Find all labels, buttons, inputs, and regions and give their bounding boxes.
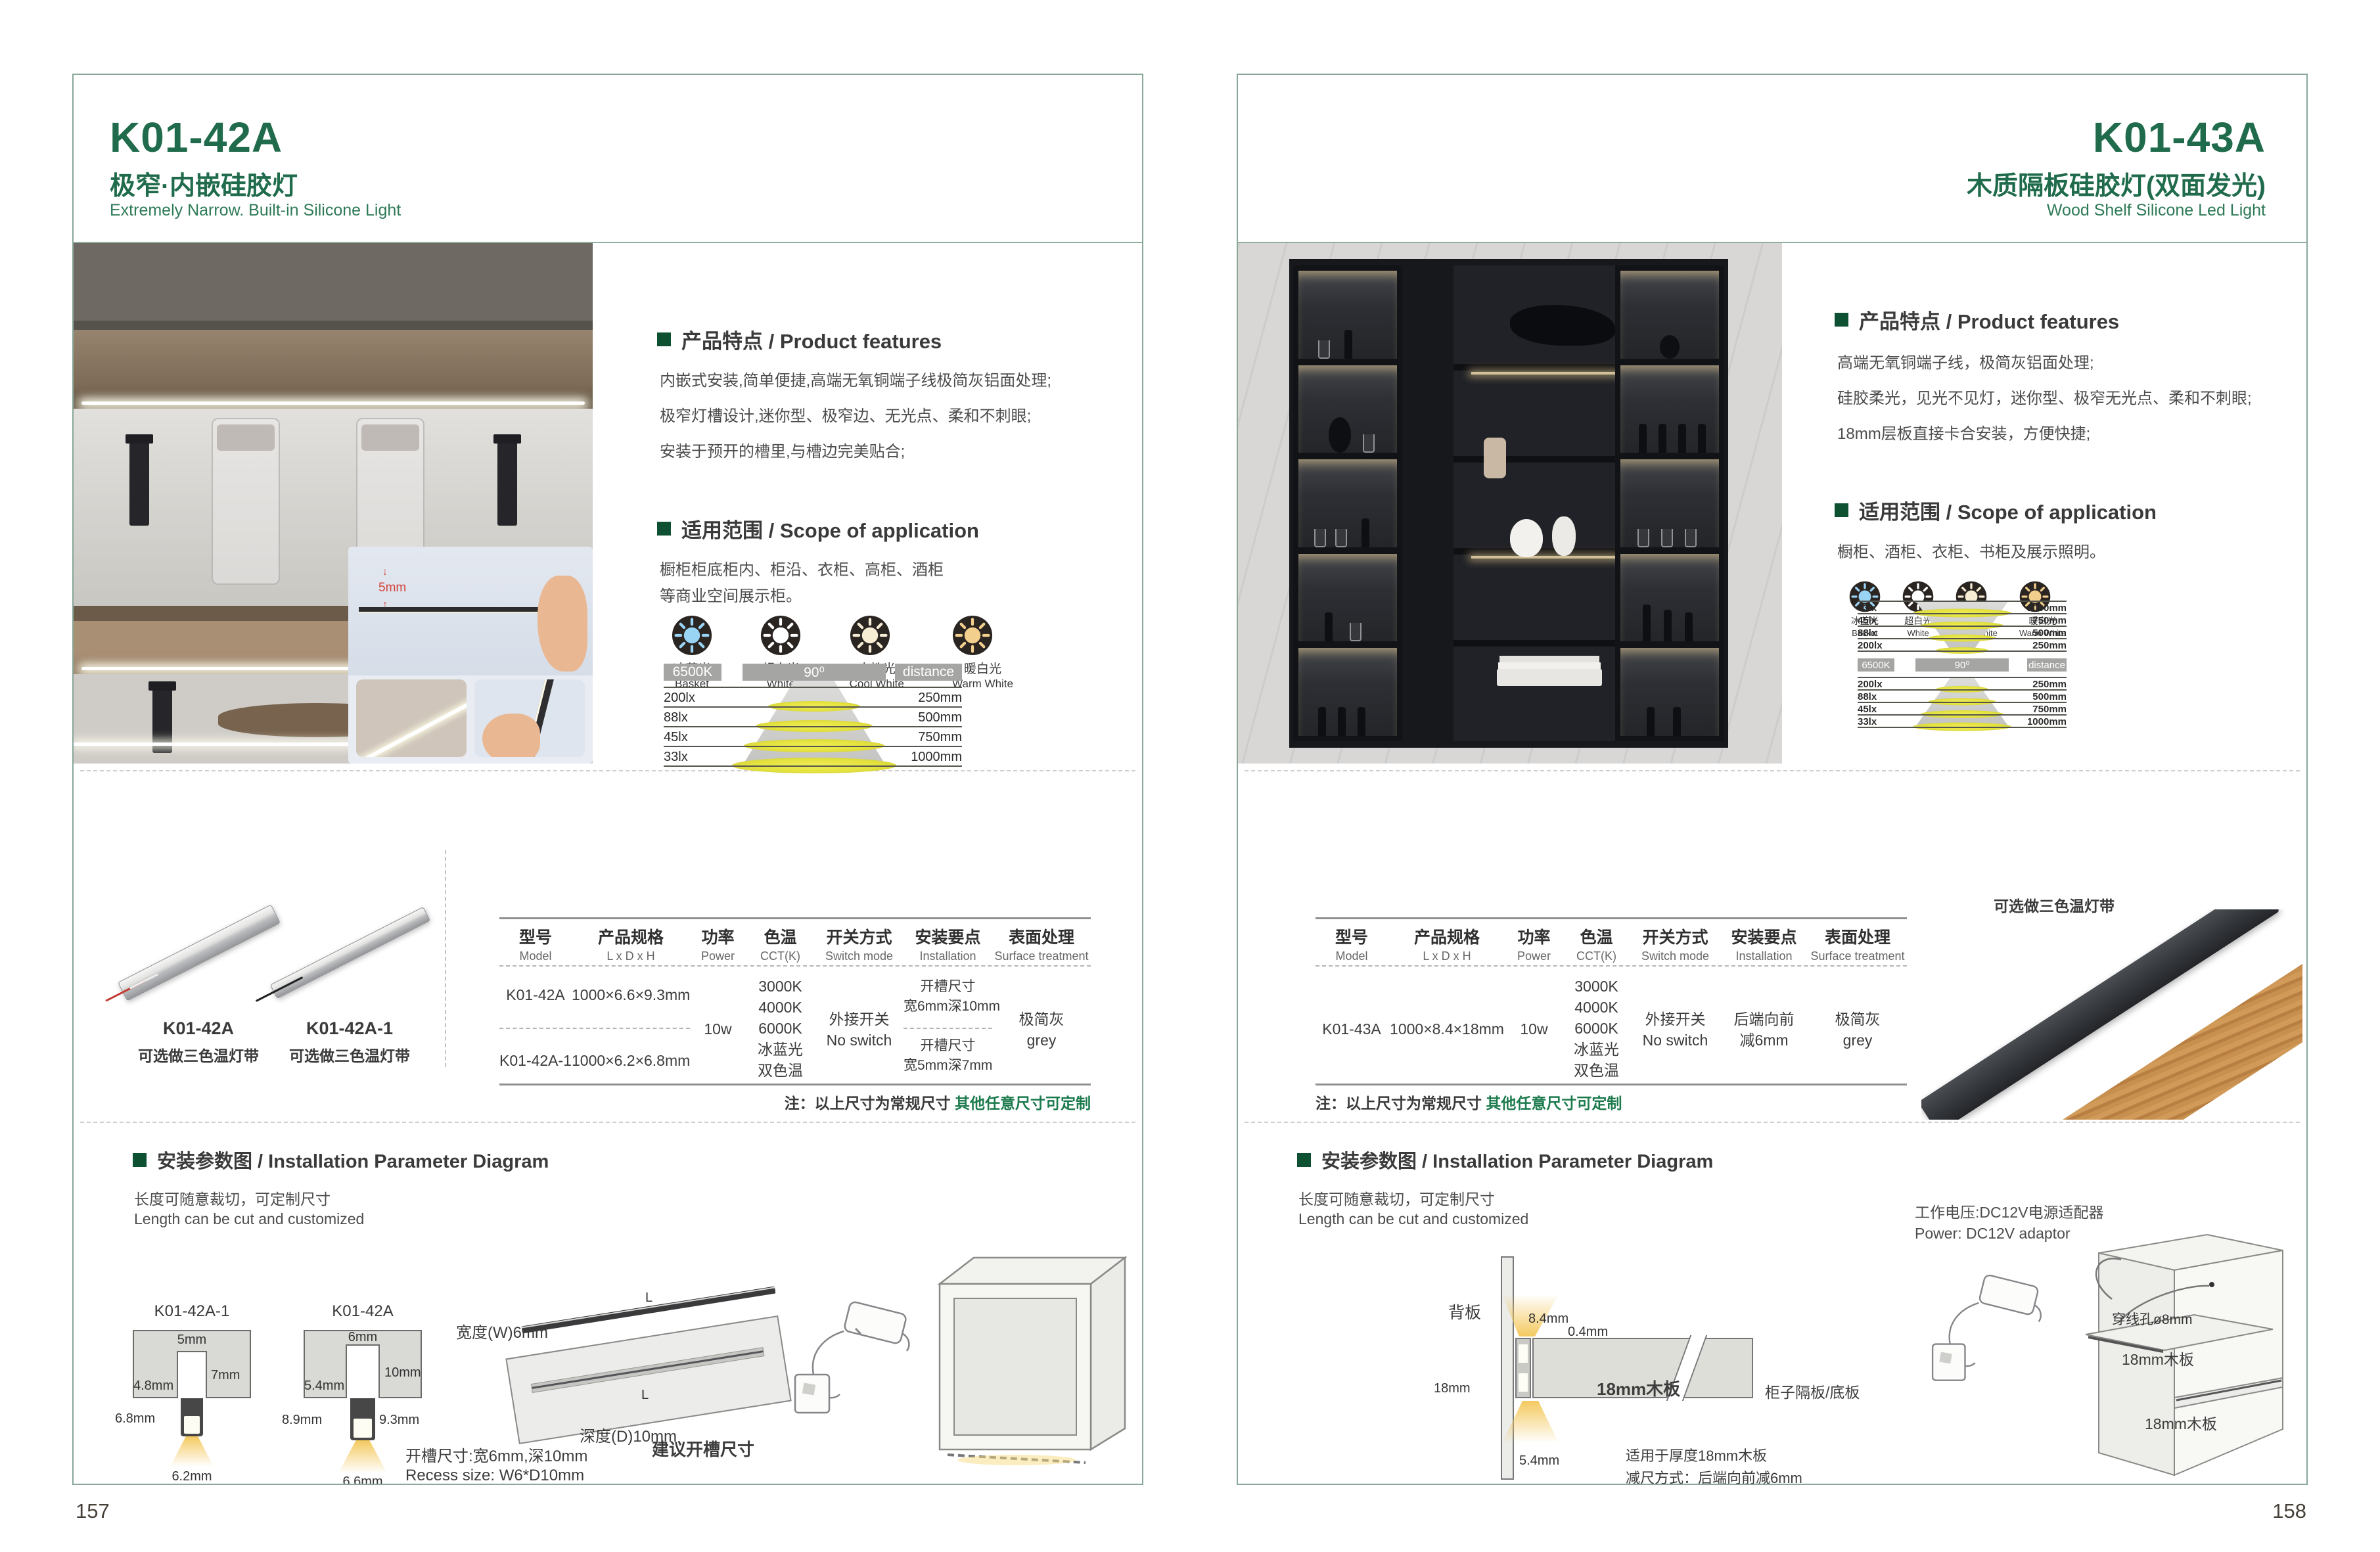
page-158: K01-43A 木质隔板硅胶灯(双面发光) Wood Shelf Silicon… <box>1237 74 2308 1485</box>
dim-0-4: 0.4mm <box>1568 1325 1608 1340</box>
cct-bar: 6500K <box>664 664 721 681</box>
dimension-5mm: 5mm <box>378 581 406 595</box>
col-header-switch: 开关方式Switch mode <box>815 924 904 963</box>
decor-cell <box>1298 459 1397 547</box>
square-bullet-icon <box>1297 1153 1311 1167</box>
title-en: Wood Shelf Silicone Led Light <box>2047 201 2266 220</box>
photometric-row: 33lx1000mm <box>1858 601 2067 614</box>
page-number-157: 157 <box>76 1499 110 1523</box>
shelf-lighting-photo: 5mm <box>74 243 593 764</box>
note-label: 注：以上尺寸为常规尺寸 <box>785 1095 951 1112</box>
fit-note-2: 减尺方式：后端向前减6mm <box>1626 1467 1802 1485</box>
board-label: 18mm木板 <box>1597 1376 1680 1400</box>
photometric-row: 200lx250mm <box>1858 638 2067 652</box>
dim-height-left: 8.9mm <box>282 1413 322 1428</box>
header-divider <box>1316 965 1907 967</box>
features-heading: 产品特点 / Product features <box>1835 305 2119 334</box>
lamp-profile <box>1515 1338 1531 1398</box>
shelf-cross-section: 背板 8.4mm 0.4mm 18mm 18mm木板 柜子隔板/底板 5.4mm… <box>1402 1251 1875 1485</box>
installation-heading: 安装参数图 / Installation Parameter Diagram <box>1297 1146 1713 1174</box>
vertical-divider <box>445 850 446 1067</box>
shelf-board-label: 18mm木板 <box>2122 1347 2194 1369</box>
diagram-label: K01-42A <box>281 1302 445 1321</box>
distance-value: 250mm <box>2032 640 2067 651</box>
cell-spec: 1000×8.4×18mm <box>1388 1019 1506 1039</box>
lux-value: 45lx <box>664 730 688 745</box>
cct-bar: 6500K <box>1858 658 1894 672</box>
section-divider <box>80 770 1135 771</box>
dim-bottom: 6.6mm <box>336 1474 389 1485</box>
photometric-row: 88lx500mm <box>1858 689 2067 703</box>
cut-note-en: Length can be cut and customized <box>134 1210 364 1228</box>
dim-depth: 10mm <box>384 1365 421 1381</box>
photometric-row: 45lx750mm <box>1858 702 2067 716</box>
cell-surface: 极简灰grey <box>992 1009 1091 1051</box>
feature-line: 18mm层板直接卡合安装，方便快捷; <box>1837 421 2090 444</box>
square-bullet-icon <box>1835 503 1848 517</box>
cell-install-1: 开槽尺寸宽6mm深10mm <box>904 977 992 1016</box>
cell-model: K01-43A <box>1316 1019 1388 1039</box>
lux-value: 88lx <box>1858 691 1877 702</box>
distance-bar: distance <box>2027 658 2067 672</box>
installation-heading-text: 安装参数图 / Installation Parameter Diagram <box>1321 1146 1713 1174</box>
photometric-row: 45lx750mm <box>664 726 962 747</box>
decor-glass <box>1637 529 1649 547</box>
photometric-row: 200lx250mm <box>664 687 962 708</box>
scope-line: 橱柜柜底柜内、柜沿、衣柜、高柜、酒柜 <box>660 557 944 580</box>
chart-baseline <box>1858 727 2067 728</box>
header-divider <box>499 965 1091 967</box>
photometric-row: 88lx500mm <box>1858 626 2067 639</box>
col-header-install: 安装要点Installation <box>1720 924 1808 963</box>
decor-shelf-board <box>74 330 593 409</box>
custom-size-note: 注：以上尺寸为常规尺寸 其他任意尺寸可定制 <box>499 1091 1091 1113</box>
decor-vase <box>1329 417 1351 453</box>
decor-glass <box>1685 529 1697 547</box>
decor-bottle <box>1639 424 1647 453</box>
lux-value: 33lx <box>664 750 688 765</box>
product-name: K01-42A-1 <box>274 1018 425 1039</box>
distance-value: 250mm <box>2032 679 2067 690</box>
dim-8-4: 8.4mm <box>1528 1312 1568 1327</box>
adapter-sketch <box>1921 1264 2046 1389</box>
spec-table: 型号Model 产品规格L x D x H 功率Power 色温CCT(K) 开… <box>499 917 1091 1085</box>
cell-switch: 外接开关No switch <box>815 1009 904 1051</box>
col-header-surface: 表面处理Surface treatment <box>992 924 1091 963</box>
photometric-row: 45lx750mm <box>1858 613 2067 627</box>
decor-hand <box>482 714 540 757</box>
inset-hand-strip-photo <box>474 679 585 757</box>
sun-icon <box>850 615 890 656</box>
recess-diagram-k01-42a-1: K01-42A-1 5mm 7mm 4.8mm 6.8mm 6.2mm <box>110 1302 274 1485</box>
adapter-drawing <box>1921 1264 2046 1389</box>
page-157: K01-42A 极窄·内嵌硅胶灯 Extremely Narrow. Built… <box>72 74 1143 1485</box>
decor-bottle <box>1362 518 1369 547</box>
cell-spec: 1000×6.6×9.3mm <box>572 985 690 1005</box>
product-note: 可选做三色温灯带 <box>123 1043 274 1066</box>
features-heading-text: 产品特点 / Product features <box>1859 305 2119 334</box>
power-note-en: Power: DC12V adaptor <box>1915 1225 2071 1243</box>
decor-bottle <box>1664 610 1672 641</box>
led-strip <box>81 401 585 405</box>
decor-bottle <box>1338 707 1346 736</box>
distance-value: 1000mm <box>911 750 962 765</box>
beam-angle-bar: 90⁰ <box>1915 658 2009 672</box>
square-bullet-icon <box>133 1153 147 1167</box>
cabinet-drawing <box>928 1238 1138 1474</box>
dim-inner: 4.8mm <box>133 1379 173 1394</box>
inset-thickness-photo: 5mm <box>348 547 593 764</box>
dim-18: 18mm <box>1434 1381 1471 1396</box>
adapter-drawing <box>783 1290 915 1422</box>
decor-bottle <box>1344 330 1352 359</box>
decor-cell <box>1298 648 1397 736</box>
row-divider <box>499 1028 690 1029</box>
decor-ceiling <box>74 243 593 330</box>
col-header-install: 安装要点Installation <box>904 924 992 963</box>
fit-note-1: 适用于厚度18mm木板 <box>1626 1444 1767 1465</box>
square-bullet-icon <box>657 522 671 536</box>
dim-height-right: 9.3mm <box>379 1413 419 1428</box>
product-figure-k01-43a <box>1921 909 2302 1120</box>
col-header-power: 功率Power <box>1506 924 1562 963</box>
dim-inner: 5.4mm <box>304 1379 344 1394</box>
scope-line: 等商业空间展示柜。 <box>660 583 802 606</box>
photometric-chart-double: 33lx1000mm 45lx750mm 88lx500mm 200lx250m… <box>1858 601 2067 729</box>
groove <box>531 1347 765 1393</box>
col-header-cct: 色温CCT(K) <box>1562 924 1631 963</box>
section-divider <box>1245 1122 2300 1123</box>
cell-power: 10w <box>690 1019 746 1039</box>
installation-heading-text: 安装参数图 / Installation Parameter Diagram <box>157 1146 549 1174</box>
cell-power: 10w <box>1506 1019 1562 1039</box>
length-label: L <box>645 1290 652 1306</box>
distance-value: 750mm <box>918 730 962 745</box>
col-header-spec: 产品规格L x D x H <box>1388 924 1506 963</box>
feature-line: 内嵌式安装,简单便捷,高端无氧铜端子线极简灰铝面处理; <box>660 367 1051 390</box>
feature-line: 安装于预开的槽里,与槽边完美贴合; <box>660 438 905 461</box>
lux-value: 45lx <box>1858 615 1877 626</box>
photometric-chart: 6500K 90⁰ distance 200lx250mm 88lx500mm … <box>664 664 962 765</box>
decor-figurine <box>1510 519 1543 557</box>
page-number-158: 158 <box>2188 1499 2306 1523</box>
decor-glass <box>1318 340 1330 359</box>
decor-bottle <box>1685 612 1693 641</box>
lux-value: 45lx <box>1858 704 1877 715</box>
lux-value: 33lx <box>1858 603 1877 614</box>
title-cn: 木质隔板硅胶灯(双面发光) <box>1967 166 2266 202</box>
decor-bottle <box>1678 424 1686 453</box>
photometric-row: 33lx1000mm <box>664 746 962 767</box>
distance-value: 750mm <box>2032 615 2067 626</box>
decor-tower-left <box>1293 265 1402 741</box>
product-figure-k01-42a-1 <box>274 890 425 1015</box>
decor-sculpture <box>1510 305 1615 346</box>
col-header-cct: 色温CCT(K) <box>746 924 815 963</box>
decor-vase <box>1484 438 1506 478</box>
decor-cell <box>1620 365 1719 453</box>
decor-bottle <box>1659 424 1666 453</box>
col-header-model: 型号Model <box>1316 924 1388 963</box>
feature-line: 高端无氧铜端子线，极简灰铝面处理; <box>1837 350 2094 373</box>
decor-bottle <box>1358 707 1365 736</box>
model-title: K01-42A <box>110 113 283 162</box>
decor-glass <box>1661 529 1673 547</box>
decor-bottle <box>1647 707 1655 736</box>
decor-cell <box>1620 648 1719 736</box>
cut-note-cn: 长度可随意裁切，可定制尺寸 <box>1298 1187 1495 1209</box>
note-label: 注：以上尺寸为常规尺寸 <box>1316 1095 1482 1112</box>
cabinet-sketch <box>928 1238 1138 1474</box>
distance-value: 1000mm <box>2027 716 2067 727</box>
decor-hand <box>538 576 587 672</box>
cell-switch: 外接开关No switch <box>1631 1009 1720 1051</box>
installation-heading: 安装参数图 / Installation Parameter Diagram <box>133 1146 549 1174</box>
lux-value: 88lx <box>664 710 688 725</box>
features-heading: 产品特点 / Product features <box>657 325 942 354</box>
decor-glass <box>1314 529 1326 547</box>
cell-install: 后端向前减6mm <box>1720 1009 1808 1051</box>
power-note-cn: 工作电压:DC12V电源适配器 <box>1915 1200 2104 1222</box>
aluminum-profile <box>270 907 430 999</box>
col-header-switch: 开关方式Switch mode <box>1631 924 1720 963</box>
dim-height: 6.8mm <box>115 1411 155 1426</box>
side-label: 柜子隔板/底板 <box>1765 1380 1860 1402</box>
dim-5-4: 5.4mm <box>1519 1453 1559 1469</box>
decor-strip <box>359 607 547 613</box>
groove-board-diagram: L L 宽度(W)6mm 深度(D)10mm 建议开槽尺寸 <box>494 1294 803 1452</box>
length-label: L <box>641 1388 649 1403</box>
light-cone <box>170 1436 214 1467</box>
light-cone <box>338 1440 387 1473</box>
decor-decanter <box>1660 335 1680 359</box>
note-custom: 其他任意尺寸可定制 <box>955 1095 1091 1112</box>
product-note: 可选做三色温灯带 <box>274 1043 425 1066</box>
model-title: K01-43A <box>2093 113 2266 162</box>
profile-section <box>181 1398 203 1436</box>
spec-table: 型号Model 产品规格L x D x H 功率Power 色温CCT(K) 开… <box>1316 917 1907 1085</box>
cut-note-cn: 长度可随意裁切，可定制尺寸 <box>134 1187 331 1209</box>
beam-angle-bar: 90⁰ <box>743 664 886 681</box>
hole-label: 穿线孔ø8mm <box>2112 1309 2193 1329</box>
decor-cabinet <box>1289 259 1728 748</box>
note-custom: 其他任意尺寸可定制 <box>1486 1095 1622 1112</box>
product-figure-k01-42a <box>123 890 274 1015</box>
profile-section <box>350 1398 375 1440</box>
decor-cell <box>1620 271 1719 359</box>
decor-books <box>1497 669 1602 686</box>
dim-depth: 7mm <box>211 1368 240 1383</box>
cell-model: K01-42A <box>499 985 572 1005</box>
distance-value: 750mm <box>2032 704 2067 715</box>
scope-line: 橱柜、酒柜、衣柜、书柜及展示照明。 <box>1837 539 2105 562</box>
lux-value: 88lx <box>1858 628 1877 639</box>
col-header-model: 型号Model <box>499 924 572 963</box>
decor-bottle <box>1325 612 1333 641</box>
chart-baseline <box>664 765 962 767</box>
cell-install-2: 开槽尺寸宽5mm深7mm <box>904 1036 992 1076</box>
cell-spec: 1000×6.2×6.8mm <box>572 1051 690 1071</box>
decor-glass <box>1350 623 1362 641</box>
section-divider <box>80 1122 1135 1123</box>
lux-value: 200lx <box>1858 679 1883 690</box>
decor-cell <box>1298 271 1397 359</box>
lux-value: 200lx <box>1858 640 1883 651</box>
suggest-label: 建议开槽尺寸 <box>652 1436 754 1461</box>
sun-icon <box>672 615 712 656</box>
inset-recessed-strip-photo <box>356 679 467 757</box>
recess-notch <box>177 1351 207 1398</box>
photometric-row: 88lx500mm <box>664 706 962 727</box>
title-en: Extremely Narrow. Built-in Silicone Ligh… <box>110 201 401 220</box>
shelf-board-label: 18mm木板 <box>2145 1411 2217 1434</box>
feature-line: 硅胶柔光，见光不见灯，迷你型、极窄无光点、柔和不刺眼; <box>1837 385 2252 408</box>
scope-heading: 适用范围 / Scope of application <box>657 514 979 543</box>
title-cn: 极窄·内嵌硅胶灯 <box>110 166 298 202</box>
cut-note-en: Length can be cut and customized <box>1298 1210 1528 1228</box>
feature-line: 极窄灯槽设计,迷你型、极窄边、无光点、柔和不刺眼; <box>660 403 1031 426</box>
decor-bottle <box>1318 707 1326 736</box>
lux-value: 33lx <box>1858 716 1877 727</box>
col-header-surface: 表面处理Surface treatment <box>1808 924 1907 963</box>
decor-bottle <box>1643 605 1651 641</box>
decor-bracket <box>497 440 517 526</box>
inset-5mm-strip-photo: 5mm <box>348 547 593 675</box>
led-strip <box>356 689 467 757</box>
row-divider <box>904 1028 992 1029</box>
dim-top: 6mm <box>331 1330 394 1345</box>
scope-heading-text: 适用范围 / Scope of application <box>1859 495 2157 525</box>
square-bullet-icon <box>1835 313 1848 327</box>
features-heading-text: 产品特点 / Product features <box>681 325 942 354</box>
product-name: K01-42A <box>123 1018 274 1039</box>
decor-bracket <box>129 440 149 526</box>
distance-bar: distance <box>895 664 962 681</box>
cell-surface: 极简灰grey <box>1808 1009 1907 1051</box>
recess-notch <box>346 1344 380 1398</box>
dim-top: 5mm <box>160 1333 223 1348</box>
distance-value: 500mm <box>2032 628 2067 639</box>
recess-size-cn: 开槽尺寸:宽6mm,深10mm <box>405 1443 587 1466</box>
cell-cct: 3000K4000K6000K冰蓝光双色温 <box>1562 976 1631 1081</box>
back-panel-label: 背板 <box>1448 1300 1481 1323</box>
sun-icon <box>952 615 993 656</box>
scope-heading: 适用范围 / Scope of application <box>1835 495 2157 525</box>
section-divider <box>1245 770 2300 771</box>
sun-icon <box>760 615 801 656</box>
scope-heading-text: 适用范围 / Scope of application <box>681 514 979 543</box>
decor-tower-right <box>1615 265 1724 741</box>
distance-value: 500mm <box>2032 691 2067 702</box>
decor-glass <box>1335 529 1347 547</box>
distance-value: 500mm <box>918 710 962 725</box>
distance-value: 1000mm <box>2027 603 2067 614</box>
decor-bottle <box>1698 424 1706 453</box>
recess-size-en: Recess size: W6*D10mm <box>405 1467 584 1485</box>
diagram-label: K01-42A-1 <box>110 1302 274 1321</box>
groove-width-label: 宽度(W)6mm <box>456 1319 548 1342</box>
photometric-row: 200lx250mm <box>1858 677 2067 691</box>
decor-figurine <box>1552 516 1576 556</box>
col-header-spec: 产品规格L x D x H <box>572 924 690 963</box>
back-panel <box>1501 1256 1514 1480</box>
decor-cell <box>1620 554 1719 642</box>
decor-cell <box>1620 459 1719 547</box>
photometric-row: 33lx1000mm <box>1858 714 2067 728</box>
adapter-sketch <box>783 1290 915 1422</box>
decor-cell <box>1298 365 1397 453</box>
lux-value: 200lx <box>664 691 695 706</box>
col-header-power: 功率Power <box>690 924 746 963</box>
cell-model: K01-42A-1 <box>499 1051 572 1071</box>
cell-cct: 3000K4000K6000K冰蓝光双色温 <box>746 976 815 1081</box>
decor-bottle <box>1673 707 1681 736</box>
custom-size-note: 注：以上尺寸为常规尺寸 其他任意尺寸可定制 <box>1316 1091 1622 1113</box>
aluminum-profile <box>118 904 281 1001</box>
distance-value: 250mm <box>918 691 962 706</box>
chart-line <box>1858 650 2067 652</box>
display-cabinet-photo <box>1238 243 1782 764</box>
square-bullet-icon <box>657 332 671 346</box>
decor-container <box>212 418 280 585</box>
decor-cell <box>1298 554 1397 642</box>
dim-bottom: 6.2mm <box>166 1469 218 1484</box>
decor-glass <box>1363 434 1375 453</box>
